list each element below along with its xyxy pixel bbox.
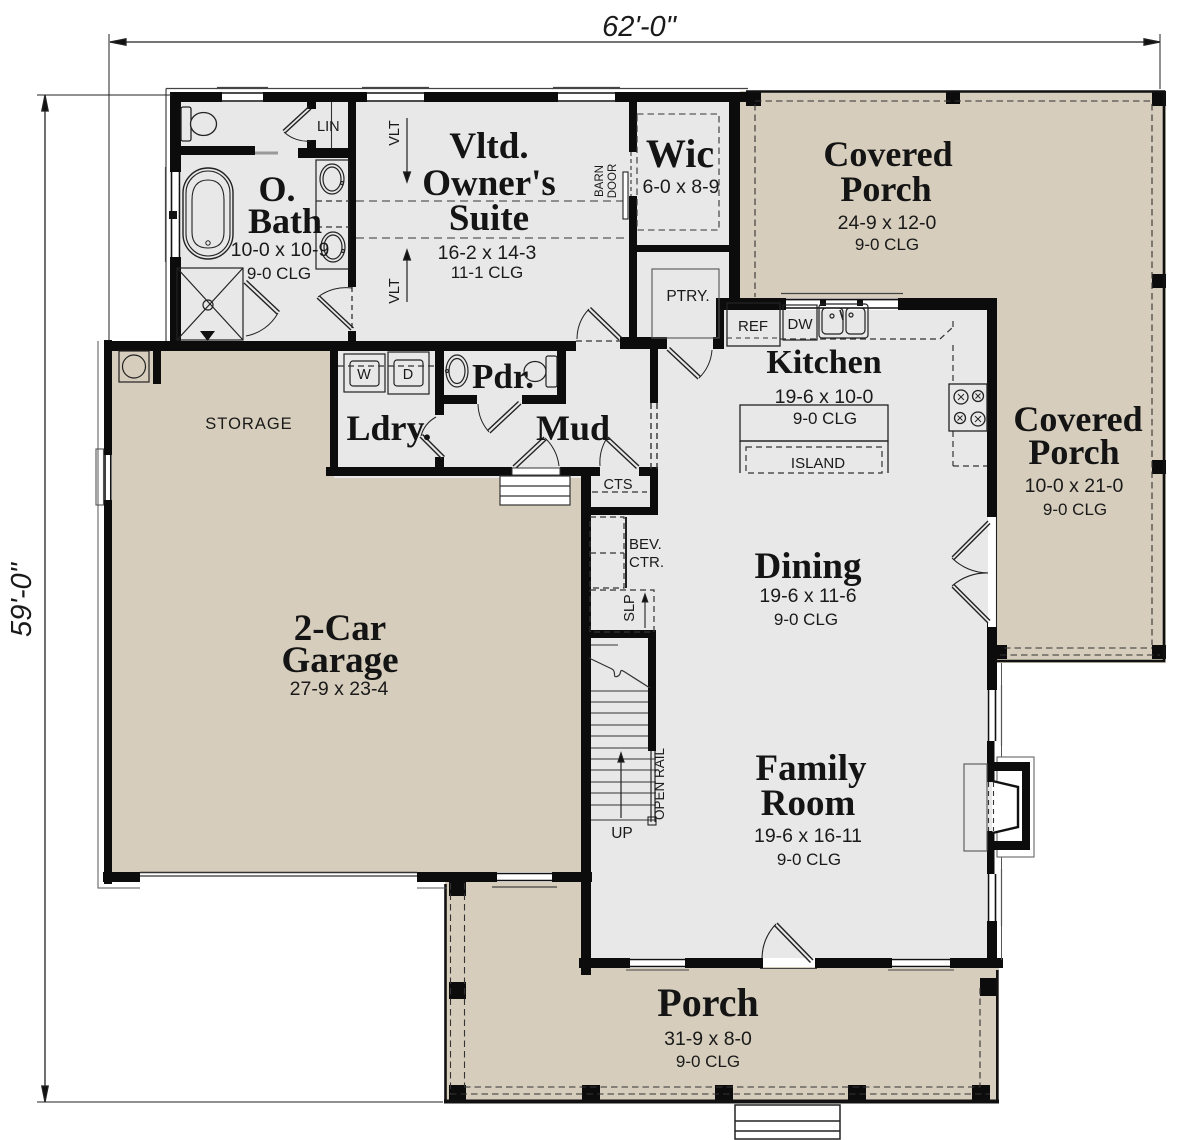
svg-text:REF: REF (738, 318, 768, 335)
svg-text:W: W (357, 367, 371, 383)
svg-text:D: D (403, 367, 413, 383)
svg-text:10-0 x 10-9: 10-0 x 10-9 (231, 239, 330, 261)
svg-text:10-0 x 21-0: 10-0 x 21-0 (1025, 475, 1124, 497)
svg-text:STORAGE: STORAGE (205, 415, 292, 433)
svg-text:Pdr.: Pdr. (472, 357, 534, 396)
svg-text:Room: Room (761, 783, 856, 824)
svg-text:ISLAND: ISLAND (791, 455, 845, 472)
svg-text:19-6 x 11-6: 19-6 x 11-6 (759, 585, 856, 607)
svg-text:Covered: Covered (823, 134, 952, 174)
svg-text:19-6 x 16-11: 19-6 x 16-11 (754, 825, 862, 847)
svg-text:24-9 x 12-0: 24-9 x 12-0 (838, 212, 937, 234)
svg-text:11-1 CLG: 11-1 CLG (451, 263, 523, 282)
svg-text:Porch: Porch (1028, 432, 1119, 472)
svg-text:CTR.: CTR. (629, 554, 664, 571)
svg-text:Vltd.: Vltd. (449, 126, 528, 167)
svg-text:VLT: VLT (387, 120, 403, 146)
svg-text:Wic: Wic (646, 131, 714, 176)
svg-text:9-0 CLG: 9-0 CLG (676, 1052, 740, 1071)
svg-text:OPEN RAIL: OPEN RAIL (652, 748, 667, 821)
svg-text:Garage: Garage (281, 640, 398, 681)
svg-text:SLP: SLP (622, 594, 638, 621)
svg-text:DW: DW (788, 316, 814, 333)
svg-text:27-9 x 23-4: 27-9 x 23-4 (290, 678, 389, 700)
svg-text:PTRY.: PTRY. (666, 288, 709, 305)
svg-text:6-0 x 8-9: 6-0 x 8-9 (643, 176, 720, 198)
svg-text:9-0 CLG: 9-0 CLG (774, 610, 838, 629)
svg-text:Suite: Suite (449, 198, 529, 239)
svg-text:9-0 CLG: 9-0 CLG (855, 235, 919, 254)
svg-text:BEV.: BEV. (629, 536, 662, 553)
svg-text:Porch: Porch (840, 169, 931, 209)
svg-text:LIN: LIN (317, 119, 340, 135)
svg-text:BARN: BARN (594, 165, 606, 197)
svg-text:9-0 CLG: 9-0 CLG (777, 850, 841, 869)
svg-text:59'-0": 59'-0" (6, 561, 38, 637)
svg-text:Dining: Dining (755, 546, 862, 587)
svg-text:UP: UP (611, 825, 633, 842)
svg-text:Porch: Porch (657, 980, 758, 1025)
svg-text:Kitchen: Kitchen (766, 344, 881, 381)
svg-text:9-0 CLG: 9-0 CLG (1043, 500, 1107, 519)
svg-text:19-6 x 10-0: 19-6 x 10-0 (775, 386, 874, 408)
svg-text:9-0 CLG: 9-0 CLG (793, 409, 857, 428)
svg-text:Bath: Bath (248, 201, 322, 241)
svg-text:Mud: Mud (536, 408, 610, 448)
svg-text:VLT: VLT (387, 278, 403, 304)
svg-text:CTS: CTS (604, 477, 633, 493)
svg-text:DOOR: DOOR (607, 164, 619, 199)
svg-text:Ldry.: Ldry. (346, 408, 431, 448)
svg-text:16-2 x 14-3: 16-2 x 14-3 (438, 242, 537, 264)
svg-text:9-0 CLG: 9-0 CLG (247, 264, 311, 283)
svg-text:62'-0": 62'-0" (602, 11, 678, 43)
svg-text:31-9 x 8-0: 31-9 x 8-0 (664, 1028, 752, 1050)
